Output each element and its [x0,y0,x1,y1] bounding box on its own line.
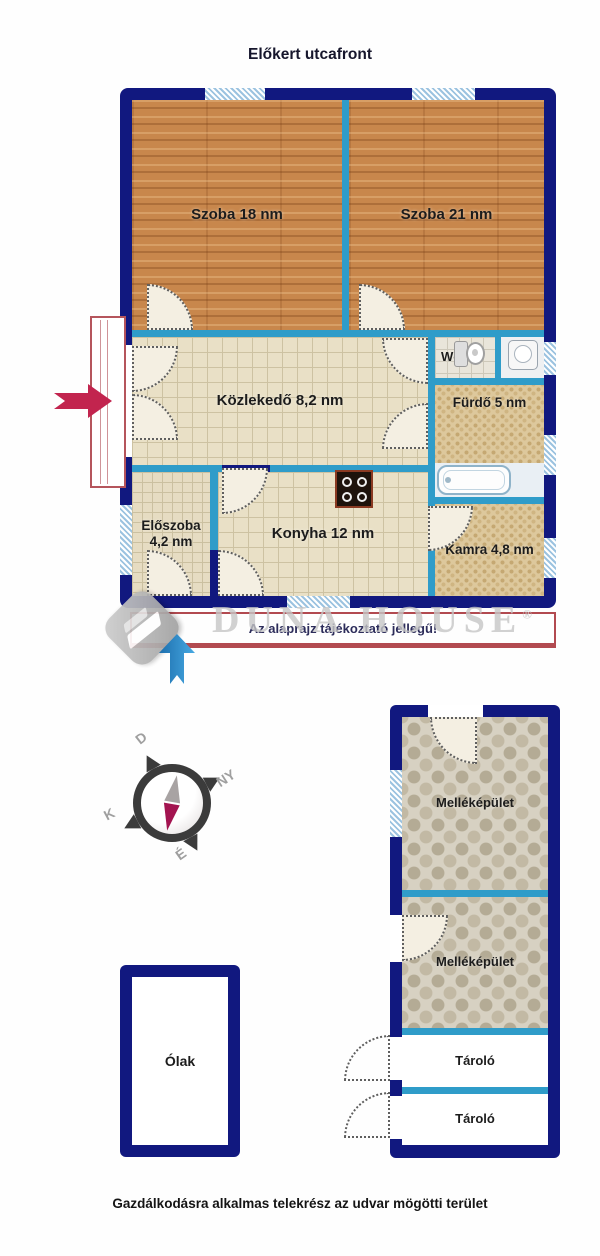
door-arc [344,1092,390,1138]
room-label: Tároló [455,1054,495,1069]
compass-label-k: K [101,805,117,824]
room-label-line2: 4,2 nm [150,534,193,549]
footer-caption: Gazdálkodásra alkalmas telekrész az udva… [20,1196,580,1211]
room-label: Tároló [455,1112,495,1127]
wall [402,1028,548,1035]
room-label-line1: Előszoba [141,518,200,533]
stove-burner [357,492,367,502]
room-label: Ólak [165,1053,195,1069]
wall [428,330,435,596]
room-label: Kamra 4,8 nm [445,542,534,558]
wall-opening [390,1037,402,1080]
window [544,538,556,578]
wall [342,100,349,330]
room-label: Szoba 18 nm [191,206,283,223]
room-tarolo-1: Tároló [402,1035,548,1087]
room-label: Fürdő 5 nm [453,385,527,411]
page-title: Előkert utcafront [20,46,600,64]
room-label: Melléképület [436,796,514,811]
wall-opening [428,705,483,717]
window [412,88,475,100]
compass-needle-north [159,803,179,832]
registered-mark: ® [522,606,532,621]
wall [210,472,218,550]
compass-label-d: D [132,729,150,748]
wall [132,465,222,472]
stove-burner [342,492,352,502]
bathtub-icon [437,465,511,495]
window [205,88,265,100]
main-entrance-arrow-icon [159,634,195,684]
wall [495,337,501,378]
bathtub-tap [445,477,451,483]
watermark: DUNA HOUSE® [212,598,532,642]
entrance-arrow-icon [54,384,114,418]
bathtub-inner [443,470,505,490]
room-label: Előszoba 4,2 nm [141,518,200,549]
wall [402,1087,548,1094]
window [544,435,556,475]
outbuilding: Melléképület Melléképület Tároló Tároló [390,705,560,1158]
window [120,505,132,575]
room-olak: Ólak [132,977,228,1145]
room-tarolo-2: Tároló [402,1094,548,1145]
wall [402,890,548,897]
floor-plan-canvas: Előkert utcafront Szoba 18 nm Szoba 21 n… [0,0,600,1256]
watermark-text: DUNA HOUSE [212,599,522,641]
room-label: Konyha 12 nm [272,525,375,542]
stove-burner [357,477,367,487]
compass-needle-south [164,774,184,803]
window [390,770,402,837]
olak-building: Ólak [120,965,240,1157]
toilet-icon [466,342,485,365]
window [544,342,556,375]
sink-icon [508,340,538,370]
room-label: Melléképület [436,955,514,970]
room-label: Szoba 21 nm [401,206,493,223]
stove-burner [342,477,352,487]
wall [132,330,544,337]
wall-opening [390,1096,402,1139]
main-building: Szoba 18 nm Szoba 21 nm Közlekedő 8,2 nm… [120,88,556,608]
wall-opening [390,915,402,962]
wall [435,378,544,385]
wall [428,497,544,504]
compass-icon: D NY K É [104,720,254,885]
door-arc [344,1035,390,1081]
stove-icon [335,470,373,508]
compass-needle [137,768,207,838]
room-label: Közlekedő 8,2 nm [217,392,344,409]
